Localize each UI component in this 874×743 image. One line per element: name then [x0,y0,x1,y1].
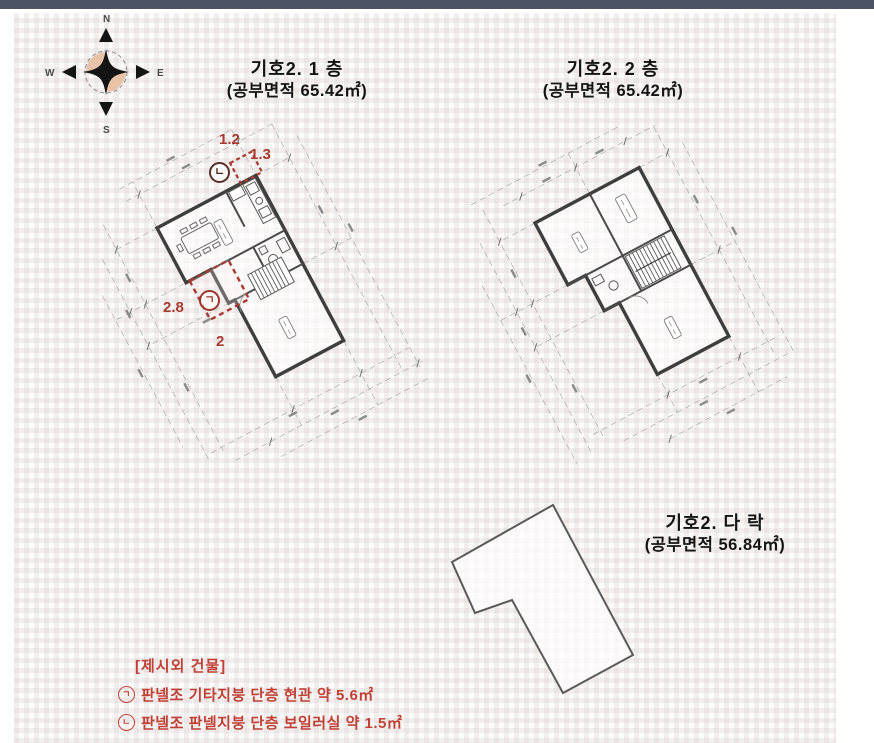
extra-building-item-2: ㄴ 판넬조 판넬지붕 단층 보일러실 약 1.5㎡ [118,712,402,733]
floor1-wall-outline [157,175,344,393]
floor1-title: 기호2. 1 층 (공부면적 65.42㎡) [187,58,407,102]
boiler-marker-icon: ㄴ [209,162,230,183]
floor2-title: 기호2. 2 층 (공부면적 65.42㎡) [503,58,723,102]
attic-title-line1: 기호2. 다 락 [600,512,830,534]
compass-star [83,49,129,95]
floor2-title-line1: 기호2. 2 층 [503,58,723,80]
floor2-wall-outline [535,168,729,392]
attic-title-line2: (공부면적 56.84㎡) [600,534,830,556]
item1-marker-icon: ㄱ [118,686,135,703]
extra-buildings-note: [제시외 건물] ㄱ 판넬조 기타지붕 단층 현관 약 5.6㎡ ㄴ 판넬조 판… [118,655,402,740]
document-page: N E S W [0,0,874,743]
boiler-height-label: 1.3 [250,147,271,162]
floor1-plan [57,98,434,502]
compass-rose-icon: N E S W [45,14,164,136]
compass-label-n: N [103,14,110,25]
porch-width-label: 2.8 [163,300,184,315]
compass-label-s: S [103,125,110,136]
attic-title: 기호2. 다 락 (공부면적 56.84㎡) [600,512,830,556]
compass-north-arrow-icon [99,28,113,42]
floor1-title-line2: (공부면적 65.42㎡) [187,80,407,102]
porch-marker-icon: ㄱ [199,290,220,311]
boiler-width-label: 1.2 [219,132,240,147]
compass-east-arrow-icon [136,65,150,79]
compass-south-arrow-icon [99,102,113,116]
floor2-plan [441,97,810,489]
extra-buildings-heading: [제시외 건물] [135,655,402,676]
floor2-title-line2: (공부면적 65.42㎡) [503,80,723,102]
floor1-title-line1: 기호2. 1 층 [187,58,407,80]
item1-text: 판넬조 기타지붕 단층 현관 약 5.6㎡ [141,684,374,705]
item2-text: 판넬조 판넬지붕 단층 보일러실 약 1.5㎡ [141,712,402,733]
compass-label-e: E [157,68,164,79]
compass-label-w: W [45,68,55,79]
floorplan-drawing: N E S W [0,0,874,743]
item2-marker-icon: ㄴ [118,714,135,731]
extra-building-item-1: ㄱ 판넬조 기타지붕 단층 현관 약 5.6㎡ [118,684,402,705]
porch-height-label: 2 [216,334,224,349]
compass-west-arrow-icon [62,65,76,79]
